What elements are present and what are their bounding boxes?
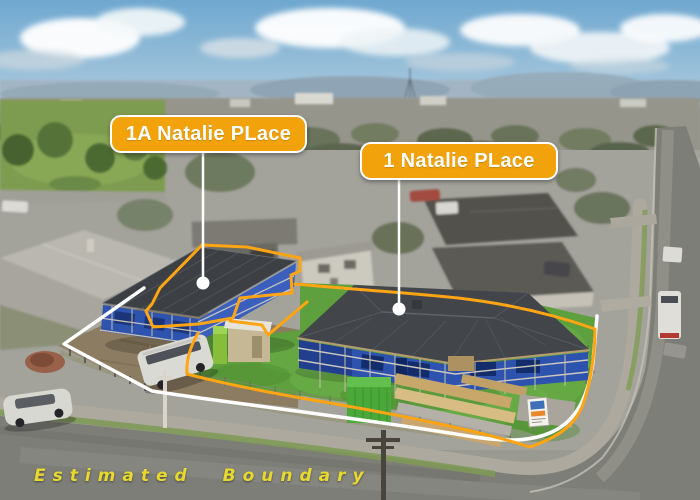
pallet (448, 356, 474, 371)
aerial-property-photo: 1A Natalie PLace 1 Natalie PLace Estimat… (0, 0, 700, 500)
estimated-boundary-note: Estimated Boundary (34, 466, 371, 486)
leader-dot-1 (393, 303, 406, 316)
callout-1a-label: 1A Natalie PLace (126, 123, 291, 146)
parked-van (658, 291, 681, 339)
callout-1-label: 1 Natalie PLace (383, 150, 534, 173)
leader-dot-1a (197, 277, 210, 290)
callout-1-natalie-place: 1 Natalie PLace (360, 142, 558, 180)
skip-bin (347, 377, 391, 423)
photo-scene (0, 0, 700, 500)
callout-1a-natalie-place: 1A Natalie PLace (110, 115, 307, 153)
portaloo (213, 326, 227, 364)
